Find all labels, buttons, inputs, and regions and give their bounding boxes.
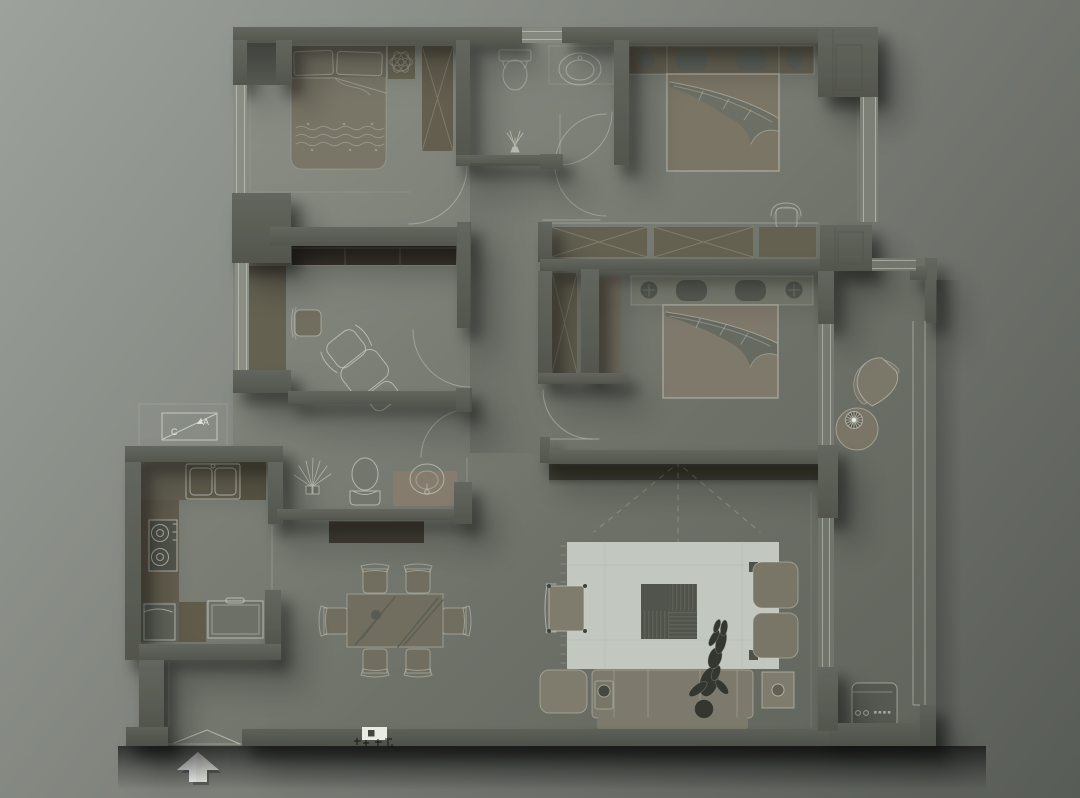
svg-text:A: A: [203, 417, 209, 427]
svg-text:C: C: [171, 427, 178, 437]
